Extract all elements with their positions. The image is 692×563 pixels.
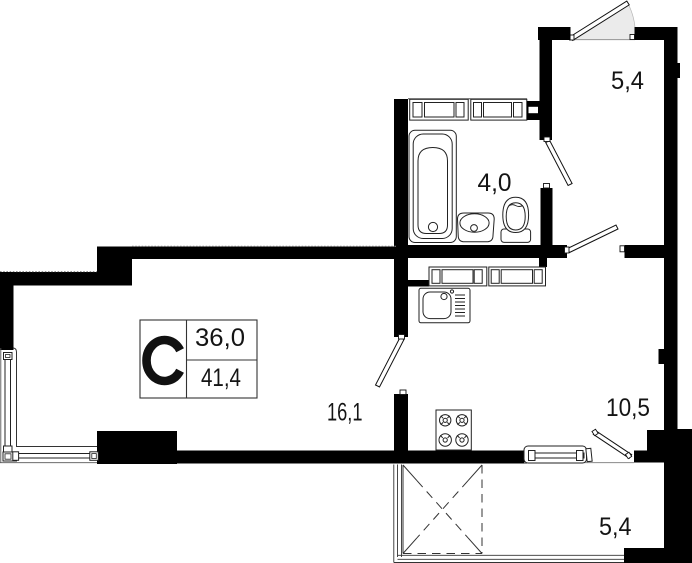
svg-text:5,4: 5,4 (599, 513, 632, 541)
svg-text:41,4: 41,4 (201, 364, 241, 392)
svg-text:36,0: 36,0 (195, 324, 245, 352)
svg-text:16,1: 16,1 (327, 399, 363, 427)
svg-text:10,5: 10,5 (606, 394, 650, 422)
svg-text:5,4: 5,4 (611, 67, 644, 95)
svg-text:4,0: 4,0 (478, 169, 512, 197)
